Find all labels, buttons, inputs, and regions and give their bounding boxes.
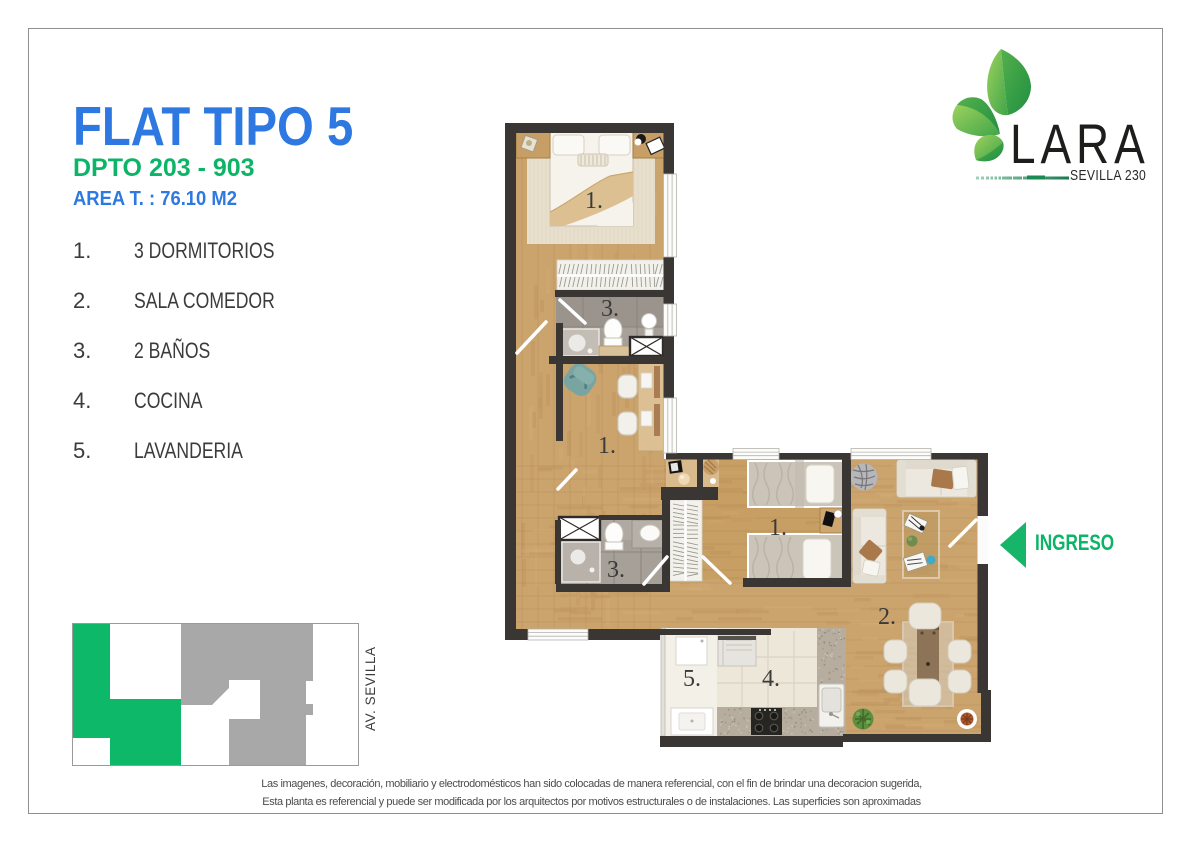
svg-text:5.: 5. <box>683 666 701 692</box>
svg-text:2.: 2. <box>878 604 896 630</box>
svg-text:4.: 4. <box>762 666 780 692</box>
svg-text:1.: 1. <box>585 188 603 214</box>
svg-text:1.: 1. <box>769 515 787 541</box>
svg-text:3.: 3. <box>601 296 619 322</box>
svg-text:3.: 3. <box>607 557 625 583</box>
svg-text:1.: 1. <box>598 433 616 459</box>
